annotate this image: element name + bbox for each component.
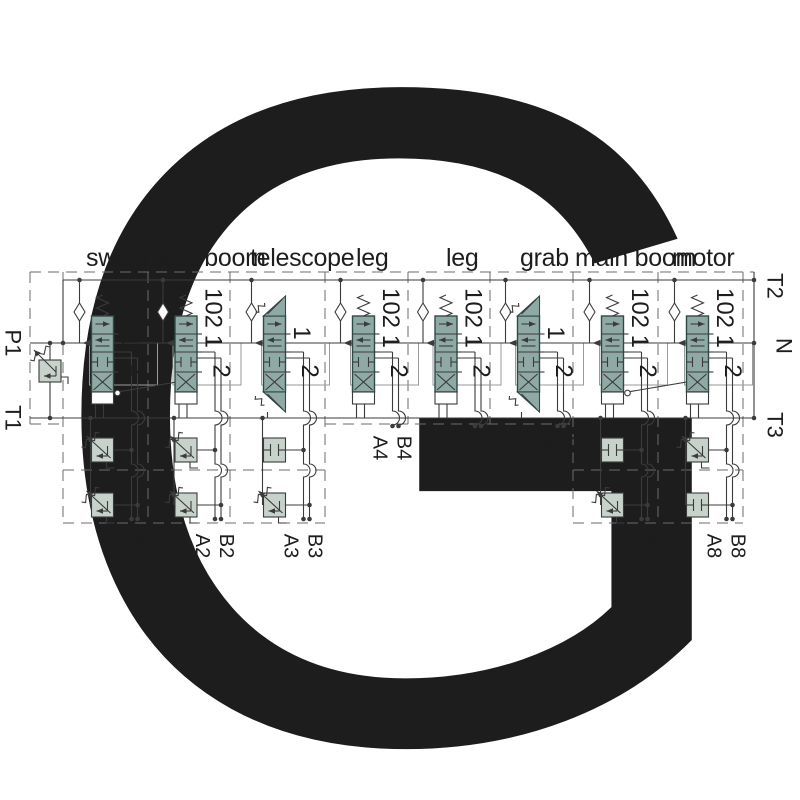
- spool-label-1: 1: [288, 326, 315, 339]
- junction-dot: [77, 278, 82, 283]
- port-b-label: B8: [727, 534, 749, 558]
- spool-label-2: 2: [124, 364, 151, 377]
- hydraulic-schematic: Gswing102 12A1B1little boom102 12A2B2tel…: [0, 0, 800, 800]
- junction-dot: [730, 517, 735, 522]
- port-a-label: A4: [369, 436, 391, 460]
- lever-knob-icon: [115, 390, 121, 396]
- junction-dot: [639, 448, 644, 453]
- junction-dot: [555, 424, 560, 429]
- left-port-label: T1: [1, 405, 26, 431]
- junction-dot: [752, 416, 757, 421]
- spool-label-1: 102 1: [460, 288, 487, 348]
- junction-dot: [219, 503, 224, 508]
- junction-dot: [421, 278, 426, 283]
- schematic-canvas: Gswing102 12A1B1little boom102 12A2B2tel…: [0, 0, 800, 800]
- port-b-label: B1: [132, 534, 154, 558]
- right-port-label: T2: [763, 273, 788, 299]
- port-a-label: A5: [451, 436, 473, 460]
- junction-dot: [724, 448, 729, 453]
- junction-dot: [307, 517, 312, 522]
- junction-dot: [213, 517, 218, 522]
- junction-dot: [752, 341, 757, 346]
- spool-label-1: 102 1: [116, 288, 143, 348]
- section-title: telescope: [250, 244, 354, 272]
- junction-dot: [48, 416, 53, 421]
- port-b-label: B4: [393, 436, 415, 460]
- port-b-label: B2: [215, 534, 237, 558]
- section-title: leg: [446, 244, 478, 272]
- junction-dot: [88, 416, 93, 421]
- section-title: grab: [520, 244, 569, 272]
- junction-dot: [645, 503, 650, 508]
- lever-knob-icon: [625, 390, 631, 396]
- junction-dot: [396, 424, 401, 429]
- junction-dot: [172, 416, 177, 421]
- port-a-label: A8: [703, 534, 725, 558]
- junction-dot: [645, 517, 650, 522]
- valve-spool: [353, 316, 375, 392]
- spool-label-2: 2: [468, 364, 495, 377]
- junction-dot: [135, 517, 140, 522]
- junction-dot: [249, 278, 254, 283]
- junction-dot: [135, 503, 140, 508]
- port-b-label: B7: [642, 534, 664, 558]
- junction-dot: [338, 278, 343, 283]
- junction-dot: [683, 416, 688, 421]
- valve-spool: [92, 316, 114, 392]
- junction-dot: [752, 278, 757, 283]
- spool-label-1: 102 1: [377, 288, 404, 348]
- junction-dot: [301, 517, 306, 522]
- section-title: motor: [672, 244, 734, 272]
- inlet-relief-valve: [39, 360, 61, 382]
- junction-dot: [213, 448, 218, 453]
- port-a-label: A3: [280, 534, 302, 558]
- junction-dot: [301, 448, 306, 453]
- spring-cap: [175, 392, 197, 404]
- right-port-label: T3: [763, 412, 788, 438]
- junction-dot: [473, 424, 478, 429]
- spool-label-1: 102 1: [200, 288, 227, 348]
- valve-spool: [175, 316, 197, 392]
- junction-dot: [672, 278, 677, 283]
- spool-label-2: 2: [385, 364, 412, 377]
- junction-dot: [129, 448, 134, 453]
- junction-dot: [61, 341, 66, 346]
- spool-label-1: 102 1: [626, 288, 653, 348]
- port-a-label: A2: [191, 534, 213, 558]
- port-a-label: A1: [108, 534, 130, 558]
- junction-dot: [598, 416, 603, 421]
- junction-dot: [724, 517, 729, 522]
- spool-label-1: 102 1: [711, 288, 738, 348]
- right-port-label: N: [772, 338, 797, 354]
- junction-dot: [307, 503, 312, 508]
- port-b-label: B5: [475, 436, 497, 460]
- valve-spool: [435, 316, 457, 392]
- junction-dot: [730, 503, 735, 508]
- spool-label-2: 2: [296, 364, 323, 377]
- spring-cap: [92, 392, 114, 404]
- spool-label-2: 2: [550, 364, 577, 377]
- junction-dot: [390, 424, 395, 429]
- junction-dot: [260, 416, 265, 421]
- valve-spool: [602, 316, 624, 392]
- section-title: swing: [86, 244, 148, 272]
- junction-dot: [129, 517, 134, 522]
- junction-dot: [503, 278, 508, 283]
- junction-dot: [561, 424, 566, 429]
- spool-label-2: 2: [208, 364, 235, 377]
- spring-cap: [435, 392, 457, 404]
- junction-dot: [587, 278, 592, 283]
- junction-dot: [48, 341, 53, 346]
- junction-dot: [639, 517, 644, 522]
- junction-dot: [219, 517, 224, 522]
- valve-spool: [687, 316, 709, 392]
- junction-dot: [161, 278, 166, 283]
- valve-spool: [264, 316, 286, 392]
- port-b-label: B3: [304, 534, 326, 558]
- spool-label-2: 2: [719, 364, 746, 377]
- spring-cap: [353, 392, 375, 404]
- valve-spool: [518, 316, 540, 392]
- spool-label-1: 1: [542, 326, 569, 339]
- port-a-label: A7: [618, 534, 640, 558]
- section-title: leg: [356, 244, 388, 272]
- junction-dot: [479, 424, 484, 429]
- spool-label-2: 2: [634, 364, 661, 377]
- left-port-label: P1: [1, 330, 26, 357]
- port-b-label: B6: [558, 436, 580, 460]
- port-a-label: A6: [534, 436, 556, 460]
- spring-cap: [687, 392, 709, 404]
- spring-cap: [602, 392, 624, 404]
